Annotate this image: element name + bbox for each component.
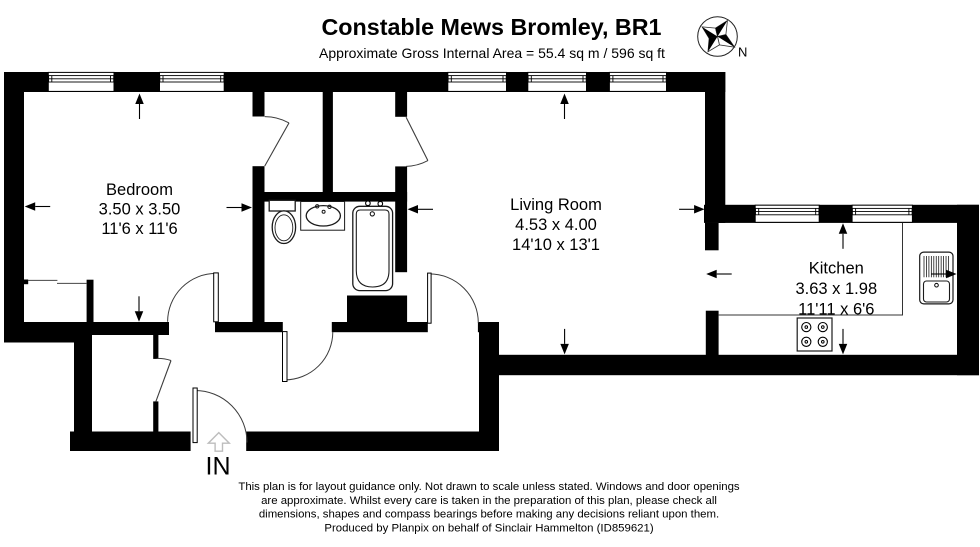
svg-text:Constable Mews Bromley, BR1: Constable Mews Bromley, BR1: [321, 14, 661, 40]
svg-text:Bedroom: Bedroom: [106, 181, 173, 199]
svg-text:N: N: [738, 44, 747, 59]
svg-text:Produced by Planpix on behalf: Produced by Planpix on behalf of Sinclai…: [324, 522, 653, 534]
svg-text:This plan is for layout guidan: This plan is for layout guidance only. N…: [238, 481, 740, 493]
svg-text:11'6 x 11'6: 11'6 x 11'6: [101, 220, 177, 238]
svg-text:Approximate Gross Internal Are: Approximate Gross Internal Area = 55.4 s…: [319, 45, 665, 61]
svg-text:3.50 x 3.50: 3.50 x 3.50: [99, 201, 181, 219]
svg-text:14'10 x 13'1: 14'10 x 13'1: [512, 236, 600, 254]
svg-text:11'11 x 6'6: 11'11 x 6'6: [798, 300, 874, 318]
svg-text:are approximate. Whilst every: are approximate. Whilst every care is ta…: [261, 495, 717, 507]
svg-text:4.53 x 4.00: 4.53 x 4.00: [515, 216, 597, 234]
svg-text:3.63 x 1.98: 3.63 x 1.98: [795, 280, 877, 298]
svg-text:Living Room: Living Room: [510, 196, 602, 214]
svg-text:IN: IN: [206, 453, 231, 481]
svg-text:dimensions, shapes and compass: dimensions, shapes and compass bearings …: [259, 509, 719, 521]
svg-text:Kitchen: Kitchen: [809, 259, 864, 277]
